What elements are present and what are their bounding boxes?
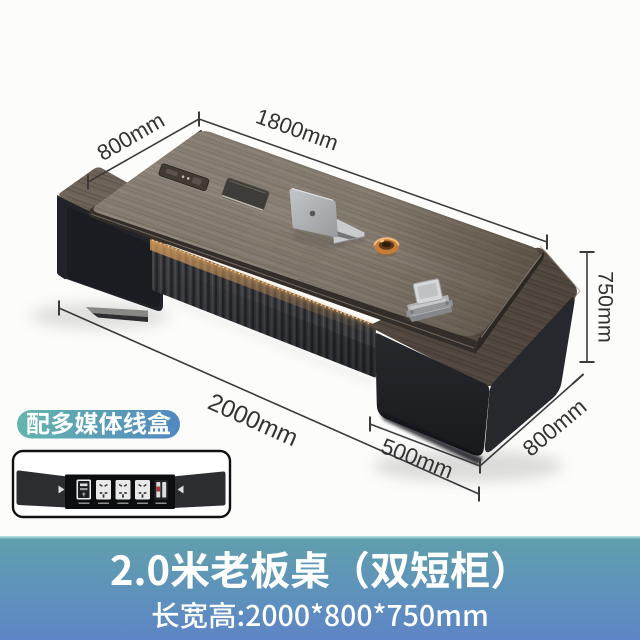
svg-text:750mm: 750mm — [593, 271, 617, 343]
